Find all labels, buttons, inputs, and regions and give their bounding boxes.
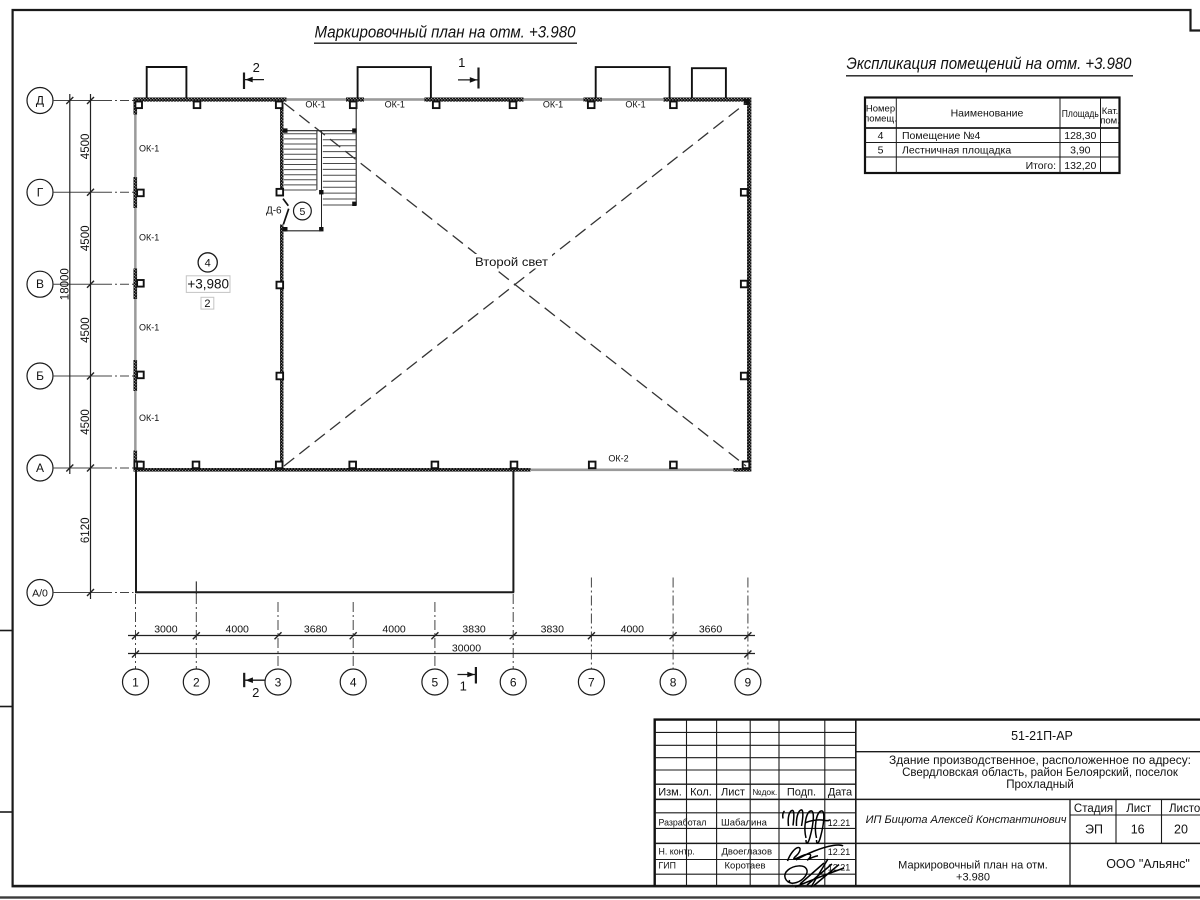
svg-text:Лестничная площадка: Лестничная площадка xyxy=(902,144,1011,156)
svg-text:3000: 3000 xyxy=(154,623,178,635)
svg-text:6: 6 xyxy=(510,675,517,689)
svg-text:А: А xyxy=(36,461,44,475)
svg-text:Наименование: Наименование xyxy=(951,108,1024,120)
svg-text:2: 2 xyxy=(204,298,210,310)
svg-text:Г: Г xyxy=(37,185,44,199)
svg-text:Изм.: Изм. xyxy=(658,786,682,798)
svg-text:132,20: 132,20 xyxy=(1064,160,1096,172)
svg-text:Маркировочный план на отм. +3.: Маркировочный план на отм. +3.980 xyxy=(315,24,577,42)
svg-text:Стадия: Стадия xyxy=(1074,803,1113,815)
svg-text:18000: 18000 xyxy=(59,268,71,300)
svg-text:12.21: 12.21 xyxy=(828,862,851,872)
svg-text:4: 4 xyxy=(205,258,211,270)
svg-text:3,90: 3,90 xyxy=(1070,144,1091,156)
svg-text:Кол.: Кол. xyxy=(690,786,712,798)
svg-text:Площадь: Площадь xyxy=(1062,109,1099,120)
svg-text:+3,980: +3,980 xyxy=(187,277,229,292)
svg-text:12.21: 12.21 xyxy=(828,818,851,828)
svg-text:№док.: №док. xyxy=(752,787,777,797)
svg-text:помещ.: помещ. xyxy=(864,114,897,125)
svg-text:Разработал: Разработал xyxy=(659,818,707,828)
svg-text:1: 1 xyxy=(460,678,467,693)
svg-text:2: 2 xyxy=(253,60,260,75)
svg-text:Дата: Дата xyxy=(828,786,853,798)
svg-text:30000: 30000 xyxy=(452,642,481,654)
svg-text:2: 2 xyxy=(193,675,200,689)
svg-text:ОК-1: ОК-1 xyxy=(305,99,325,109)
svg-text:4: 4 xyxy=(878,130,884,142)
svg-text:3680: 3680 xyxy=(304,623,328,635)
svg-text:3: 3 xyxy=(275,675,282,689)
svg-text:Второй свет: Второй свет xyxy=(475,255,549,269)
svg-text:2: 2 xyxy=(252,685,259,700)
svg-text:4500: 4500 xyxy=(80,226,92,252)
svg-text:4: 4 xyxy=(350,675,357,689)
svg-text:Коротаев: Коротаев xyxy=(725,861,766,872)
svg-text:Б: Б xyxy=(36,369,44,383)
svg-text:4500: 4500 xyxy=(80,409,92,435)
svg-text:Д: Д xyxy=(36,94,44,108)
svg-text:А/0: А/0 xyxy=(32,588,48,600)
svg-text:20: 20 xyxy=(1174,823,1188,837)
svg-text:16: 16 xyxy=(1131,823,1145,837)
svg-text:Лист: Лист xyxy=(1126,803,1152,815)
svg-text:9: 9 xyxy=(745,675,752,689)
svg-text:6120: 6120 xyxy=(80,518,92,544)
svg-text:Итого:: Итого: xyxy=(1026,160,1056,172)
svg-text:1: 1 xyxy=(458,55,465,70)
svg-text:ОК-1: ОК-1 xyxy=(139,413,159,423)
svg-text:Шабалина: Шабалина xyxy=(721,818,768,829)
svg-text:ОК-1: ОК-1 xyxy=(139,233,159,243)
svg-text:ОК-1: ОК-1 xyxy=(625,99,645,109)
svg-text:ООО "Альянс": ООО "Альянс" xyxy=(1106,857,1190,871)
svg-text:128,30: 128,30 xyxy=(1064,130,1096,142)
svg-text:Свердловская область, район Бе: Свердловская область, район Белоярский, … xyxy=(902,767,1179,779)
svg-text:3830: 3830 xyxy=(462,623,486,635)
svg-text:5: 5 xyxy=(432,675,439,689)
svg-text:4500: 4500 xyxy=(80,134,92,160)
svg-text:Прохладный: Прохладный xyxy=(1006,779,1074,791)
svg-text:8: 8 xyxy=(670,675,677,689)
svg-text:пом.: пом. xyxy=(1100,116,1120,127)
svg-text:ОК-1: ОК-1 xyxy=(543,99,563,109)
svg-text:+3.980: +3.980 xyxy=(956,872,990,884)
svg-text:Экспликация помещений на отм.: Экспликация помещений на отм. +3.980 xyxy=(847,55,1133,73)
svg-text:7: 7 xyxy=(588,675,595,689)
svg-text:Маркировочный план на отм.: Маркировочный план на отм. xyxy=(898,860,1048,872)
svg-text:4000: 4000 xyxy=(382,623,406,635)
svg-text:12.21: 12.21 xyxy=(828,847,851,857)
svg-text:ИП Бицюта Алексей Константинов: ИП Бицюта Алексей Константинович xyxy=(866,814,1067,826)
svg-text:3660: 3660 xyxy=(699,623,723,635)
svg-text:ОК-1: ОК-1 xyxy=(139,323,159,333)
svg-text:ЭП: ЭП xyxy=(1085,823,1103,837)
svg-text:Н. контр.: Н. контр. xyxy=(659,847,695,857)
svg-text:4500: 4500 xyxy=(80,317,92,343)
svg-text:51-21П-АР: 51-21П-АР xyxy=(1011,729,1073,743)
svg-text:Подп.: Подп. xyxy=(787,786,816,798)
svg-text:Лист: Лист xyxy=(721,786,745,798)
svg-text:3830: 3830 xyxy=(541,623,565,635)
svg-text:5: 5 xyxy=(878,144,884,156)
svg-text:ОК-1: ОК-1 xyxy=(139,144,159,154)
svg-text:Здание производственное, распо: Здание производственное, расположенное п… xyxy=(889,755,1191,767)
svg-text:1: 1 xyxy=(132,675,139,689)
svg-text:5: 5 xyxy=(299,206,305,218)
svg-text:Листов: Листов xyxy=(1169,803,1200,815)
svg-text:Двоеглазов: Двоеглазов xyxy=(722,847,773,858)
svg-text:Д-6: Д-6 xyxy=(266,206,282,217)
svg-text:ОК-1: ОК-1 xyxy=(385,99,405,109)
svg-text:Помещение №4: Помещение №4 xyxy=(902,130,980,142)
svg-text:ГИП: ГИП xyxy=(659,861,676,871)
svg-text:4000: 4000 xyxy=(621,623,645,635)
svg-text:В: В xyxy=(36,277,44,291)
svg-text:4000: 4000 xyxy=(226,623,250,635)
svg-text:ОК-2: ОК-2 xyxy=(608,454,628,464)
